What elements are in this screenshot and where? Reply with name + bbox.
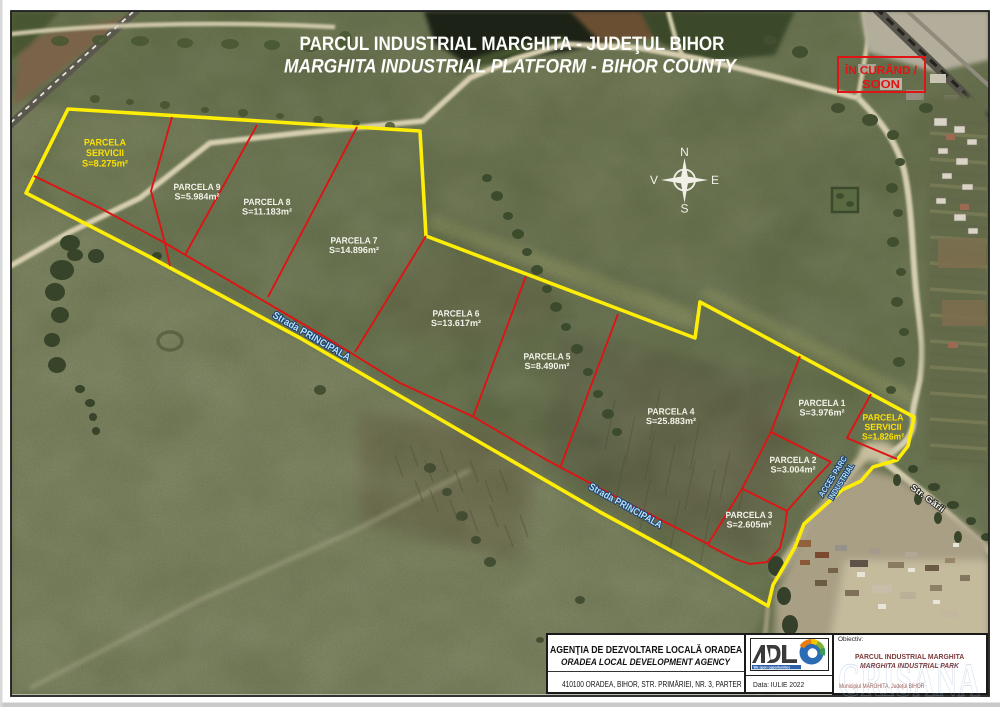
svg-text:SOON: SOON bbox=[862, 79, 900, 91]
svg-text:PARCELA 8: PARCELA 8 bbox=[244, 197, 291, 207]
svg-text:SERVICII: SERVICII bbox=[865, 422, 902, 432]
svg-text:N: N bbox=[680, 145, 689, 159]
svg-text:S=11.183m²: S=11.183m² bbox=[242, 207, 292, 217]
svg-text:S=5.984m²: S=5.984m² bbox=[175, 192, 220, 202]
svg-text:S=13.617m²: S=13.617m² bbox=[431, 318, 481, 328]
svg-text:S=14.896m²: S=14.896m² bbox=[329, 245, 379, 255]
svg-text:PARCELA 6: PARCELA 6 bbox=[433, 309, 480, 319]
svg-text:PARCELA 7: PARCELA 7 bbox=[331, 236, 378, 246]
svg-text:S=2.605m²: S=2.605m² bbox=[727, 520, 772, 530]
svg-text:S=25.883m²: S=25.883m² bbox=[646, 416, 696, 426]
svg-text:S: S bbox=[680, 202, 688, 216]
svg-text:PARCELA: PARCELA bbox=[863, 413, 904, 423]
svg-text:PARCELA 9: PARCELA 9 bbox=[174, 182, 221, 192]
svg-text:PARCELA 4: PARCELA 4 bbox=[648, 407, 695, 417]
svg-text:E: E bbox=[711, 173, 719, 187]
svg-text:PARCELA 2: PARCELA 2 bbox=[770, 455, 817, 465]
svg-text:S=8.275m²: S=8.275m² bbox=[82, 159, 128, 170]
svg-text:MARGHITA INDUSTRIAL PLATFORM -: MARGHITA INDUSTRIAL PLATFORM - BIHOR COU… bbox=[284, 56, 738, 78]
svg-text:PARCELA 5: PARCELA 5 bbox=[524, 352, 571, 362]
svg-text:S=3.004m²: S=3.004m² bbox=[771, 465, 816, 475]
svg-text:SERVICII: SERVICII bbox=[86, 148, 124, 159]
svg-text:S=1.826m²: S=1.826m² bbox=[862, 432, 904, 442]
svg-text:PARCUL INDUSTRIAL MARGHITA - J: PARCUL INDUSTRIAL MARGHITA - JUDEŢUL BIH… bbox=[300, 33, 725, 55]
svg-text:PARCELA: PARCELA bbox=[84, 138, 126, 149]
svg-text:S=8.490m²: S=8.490m² bbox=[525, 361, 570, 371]
svg-text:ÎN CURÂND /: ÎN CURÂND / bbox=[844, 63, 918, 77]
svg-text:PARCELA 3: PARCELA 3 bbox=[726, 510, 773, 520]
svg-text:V: V bbox=[650, 173, 658, 187]
svg-text:PARCELA 1: PARCELA 1 bbox=[799, 398, 846, 408]
svg-text:S=3.976m²: S=3.976m² bbox=[800, 408, 845, 418]
svg-text:We open opportunities: We open opportunities bbox=[754, 665, 791, 669]
